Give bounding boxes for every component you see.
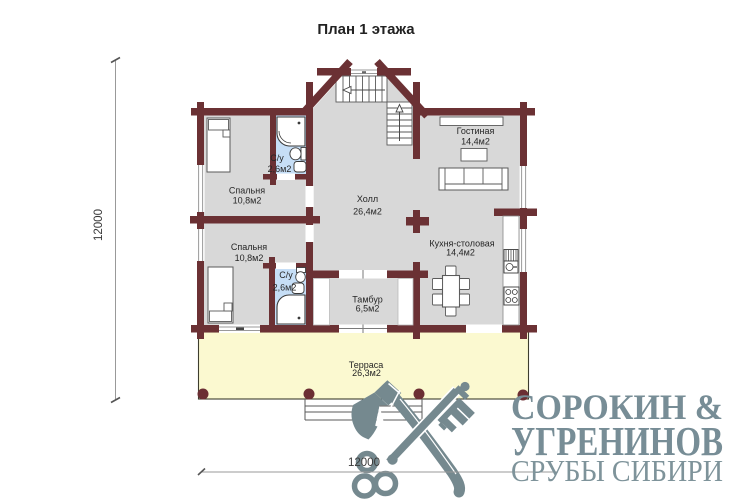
svg-text:14,4м2: 14,4м2 (446, 248, 475, 258)
svg-text:10,8м2: 10,8м2 (235, 253, 264, 263)
svg-text:2,6м2: 2,6м2 (268, 164, 292, 174)
svg-text:2,6м2: 2,6м2 (273, 283, 297, 293)
svg-text:С/у: С/у (279, 270, 293, 280)
svg-text:СРУБЫ СИБИРИ: СРУБЫ СИБИРИ (511, 453, 723, 488)
svg-text:12000: 12000 (93, 209, 105, 241)
svg-text:10,8м2: 10,8м2 (233, 196, 262, 206)
svg-text:План 1 этажа: План 1 этажа (317, 21, 415, 38)
svg-text:Гостиная: Гостиная (457, 126, 495, 136)
svg-text:Спальня: Спальня (231, 242, 267, 252)
svg-text:С/у: С/у (270, 153, 284, 163)
svg-text:12000: 12000 (348, 457, 380, 469)
svg-text:14,4м2: 14,4м2 (461, 137, 490, 147)
svg-text:6,5м2: 6,5м2 (356, 304, 380, 314)
svg-text:26,3м2: 26,3м2 (352, 368, 381, 378)
svg-text:26,4м2: 26,4м2 (353, 207, 382, 217)
svg-text:Холл: Холл (357, 194, 378, 204)
svg-text:Спальня: Спальня (229, 186, 265, 196)
